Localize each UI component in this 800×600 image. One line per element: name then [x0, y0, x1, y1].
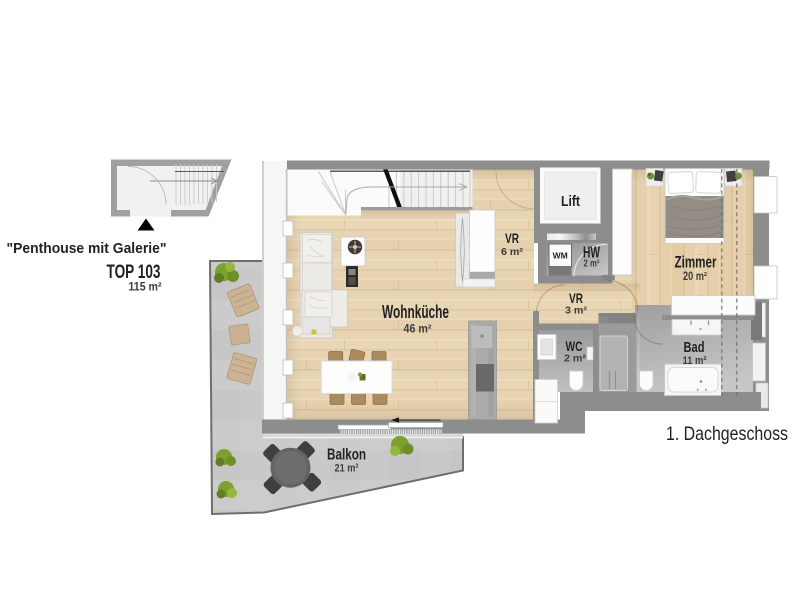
svg-text:6 m²: 6 m² — [501, 246, 524, 258]
svg-text:"Penthouse mit Galerie": "Penthouse mit Galerie" — [7, 240, 167, 257]
svg-text:2 m²: 2 m² — [564, 353, 587, 365]
svg-text:1. Dachgeschoss: 1. Dachgeschoss — [666, 423, 788, 445]
svg-text:Bad: Bad — [684, 339, 705, 356]
svg-text:VR: VR — [505, 230, 519, 246]
svg-text:WM: WM — [553, 251, 568, 261]
svg-text:2 m²: 2 m² — [584, 259, 601, 270]
svg-text:Zimmer: Zimmer — [675, 254, 717, 272]
svg-text:21 m²: 21 m² — [335, 463, 359, 475]
svg-text:46 m²: 46 m² — [404, 324, 432, 336]
svg-text:Balkon: Balkon — [327, 447, 366, 464]
svg-text:20 m²: 20 m² — [683, 271, 707, 283]
svg-text:11 m²: 11 m² — [683, 355, 707, 367]
svg-text:Lift: Lift — [561, 193, 580, 210]
svg-text:115 m²: 115 m² — [129, 280, 162, 294]
svg-text:Wohnküche: Wohnküche — [382, 302, 449, 322]
svg-text:3 m²: 3 m² — [565, 305, 588, 317]
